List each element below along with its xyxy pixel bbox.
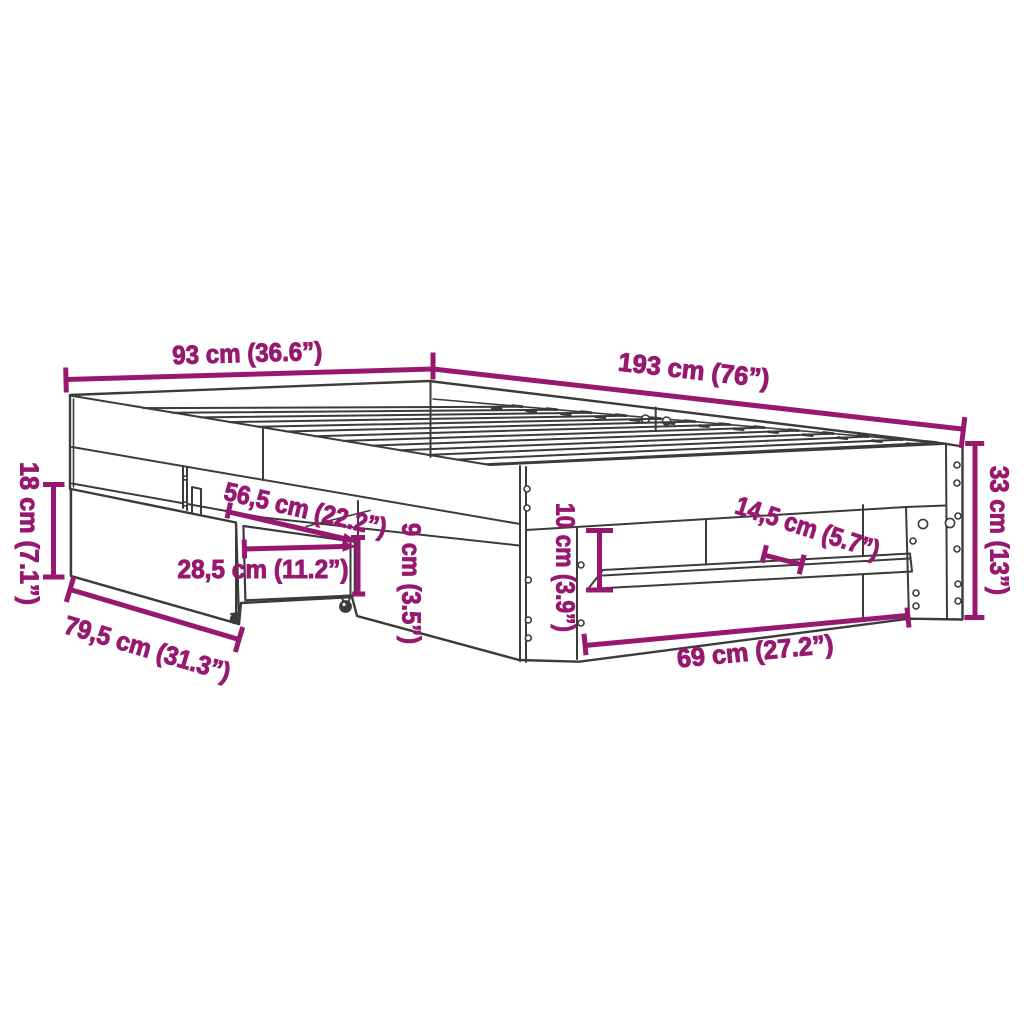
svg-text:33 cm (13”): 33 cm (13”) <box>985 466 1015 595</box>
svg-text:9 cm (3.5”): 9 cm (3.5”) <box>397 523 427 644</box>
svg-text:93 cm (36.6”): 93 cm (36.6”) <box>172 336 323 370</box>
svg-text:18 cm (7.1”): 18 cm (7.1”) <box>15 462 45 605</box>
svg-text:28,5 cm (11.2”): 28,5 cm (11.2”) <box>178 554 349 584</box>
svg-text:10 cm (3.9”): 10 cm (3.9”) <box>551 503 581 632</box>
